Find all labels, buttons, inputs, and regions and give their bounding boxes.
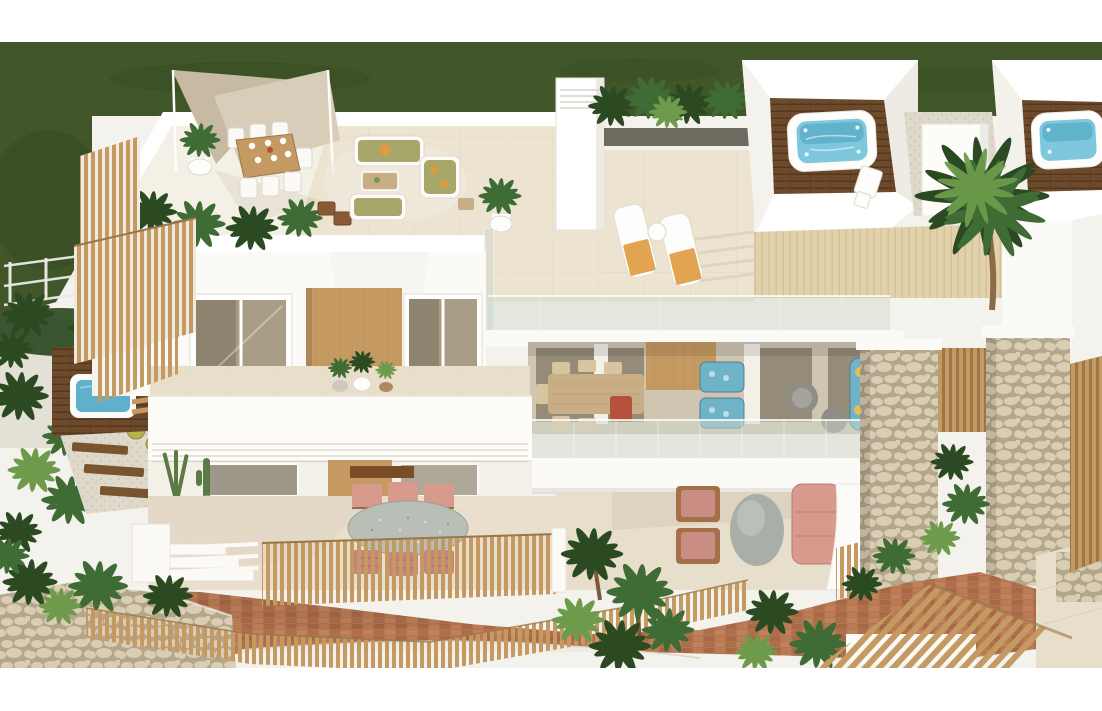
right-slat-fence	[1070, 356, 1102, 572]
top-margin	[0, 0, 1102, 42]
pink-armchair-1	[676, 486, 720, 522]
patio-fence	[262, 534, 556, 606]
jacuzzi-left-tub	[787, 110, 878, 173]
terracotta-chair	[610, 396, 632, 422]
jacuzzi-right-tub	[1031, 110, 1102, 170]
jacuzzi-left	[742, 60, 918, 234]
middle-floor-lounge	[528, 342, 894, 494]
side-table	[648, 223, 666, 241]
pink-armchair-2	[676, 528, 720, 564]
planter-boxes	[604, 128, 754, 146]
stone-pillar-2	[986, 334, 1070, 586]
sofa-1-pillow	[380, 145, 391, 156]
coffee-table	[362, 172, 398, 190]
render-canvas	[0, 0, 1102, 711]
balcony-parapet	[148, 396, 532, 466]
pink-sofa	[792, 484, 840, 564]
bottom-margin	[0, 668, 1102, 711]
sofa-2-cushions	[354, 198, 402, 216]
armchair-cushion	[424, 160, 456, 194]
wood-console	[350, 466, 414, 478]
